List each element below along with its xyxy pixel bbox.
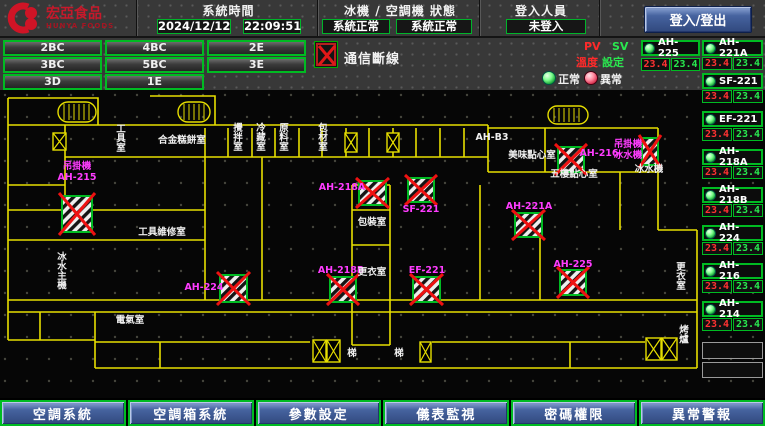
unit-label: SF-221 — [403, 204, 440, 215]
status-led-icon — [705, 304, 716, 315]
floor-button-grid: 2BC 4BC 2E 3BC 5BC 3E 3D 1E — [3, 40, 309, 91]
empty-slot — [702, 342, 763, 359]
unit-label: AH-215 — [57, 172, 96, 183]
nav-ahu-system[interactable]: 空調箱系統 — [128, 400, 254, 426]
pv-name-label: 溫度 — [576, 54, 598, 70]
abnormal-led-icon — [584, 71, 598, 85]
nav-password-access[interactable]: 密碼權限 — [511, 400, 637, 426]
floor-button-2e[interactable]: 2E — [207, 40, 306, 56]
unit-label: AH-224 — [184, 282, 223, 293]
equipment-tile-ah-221a[interactable]: AH-221A — [702, 40, 763, 56]
status-led-icon — [705, 190, 716, 201]
room-label: 包材室 — [317, 122, 328, 153]
room-label: 更衣室 — [358, 266, 387, 278]
sv-name-label: 設定 — [602, 54, 624, 70]
sv-value: 23.4 — [733, 57, 763, 70]
pv-value: 23.4 — [702, 128, 732, 141]
unit-label: AH-225 — [553, 259, 592, 270]
unit-label: 冰水機 — [614, 149, 643, 161]
ahu-status-value: 系統正常 — [396, 19, 472, 34]
comm-loss-marker[interactable] — [512, 210, 545, 240]
comm-loss-label: 通信斷線 — [344, 48, 400, 67]
abnormal-label: 異常 — [600, 71, 622, 87]
brand-logo-icon — [6, 2, 42, 34]
room-label: 攪拌室 — [233, 122, 243, 153]
floor-button-1e[interactable]: 1E — [105, 74, 204, 90]
room-label: 包裝室 — [357, 216, 387, 228]
pv-value: 23.4 — [702, 280, 732, 293]
pv-value: 23.4 — [702, 166, 732, 179]
room-label: 電氣室 — [116, 314, 145, 326]
room-label: 冷藏室 — [256, 122, 266, 153]
equipment-tile-ah-214[interactable]: AH-214 — [702, 301, 763, 317]
floor-button-3bc[interactable]: 3BC — [3, 57, 102, 73]
equipment-values-ah-225: 23.4 23.4 — [641, 58, 700, 71]
comm-loss-marker[interactable] — [327, 274, 359, 305]
sv-value: 23.4 — [733, 204, 763, 217]
equipment-tile-ah-225[interactable]: AH-225 — [641, 40, 700, 56]
normal-led-icon — [542, 71, 556, 85]
equipment-values: 23.423.4 — [702, 318, 763, 331]
equipment-values: 23.423.4 — [702, 90, 763, 103]
status-led-icon — [705, 152, 716, 163]
equipment-name: AH-224 — [719, 222, 760, 244]
nav-alarm[interactable]: 異常警報 — [639, 400, 765, 426]
equipment-values: 23.423.4 — [702, 242, 763, 255]
login-logout-button[interactable]: 登入/登出 — [644, 6, 752, 33]
sv-value: 23.4 — [733, 166, 763, 179]
status-led-icon — [705, 114, 716, 125]
pv-value: 23.4 — [702, 204, 732, 217]
comm-loss-marker[interactable] — [59, 193, 95, 235]
comm-loss-icon — [314, 41, 338, 68]
equipment-tile-ah-218a[interactable]: AH-218A — [702, 149, 763, 165]
shaft-icon — [313, 340, 326, 362]
comm-loss-marker[interactable] — [410, 274, 443, 305]
sv-value: 23.4 — [671, 58, 700, 71]
nav-parameter-config[interactable]: 參數設定 — [256, 400, 382, 426]
equipment-tile-ah-218b[interactable]: AH-218B — [702, 187, 763, 203]
shaft-icon — [420, 342, 431, 362]
status-led-icon — [705, 76, 716, 87]
room-label: 冰水主機 — [57, 251, 67, 292]
unit-label: EF-221 — [409, 265, 445, 276]
shaft-icon — [345, 133, 357, 152]
room-label: 美味點心室 — [507, 149, 556, 161]
machine-status-label: 冰機 / 空調機 狀態 — [319, 2, 481, 19]
floor-button-2bc[interactable]: 2BC — [3, 40, 102, 56]
equipment-tile-ah-216[interactable]: AH-216 — [702, 263, 763, 279]
sv-value: 23.4 — [733, 242, 763, 255]
equipment-values: 23.423.4 — [702, 166, 763, 179]
sv-value: 23.4 — [733, 128, 763, 141]
room-label: 原料室 — [279, 123, 289, 153]
floor-button-3d[interactable]: 3D — [3, 74, 102, 90]
equipment-name: AH-221A — [719, 37, 760, 59]
equipment-name: AH-216 — [719, 260, 760, 282]
pv-value: 23.4 — [702, 90, 732, 103]
logo: 宏亞食品 HUNYA FOODS — [6, 2, 114, 34]
bottom-nav: 空調系統 空調箱系統 參數設定 儀表監視 密碼權限 異常警報 — [0, 400, 765, 426]
room-label: 工具室 — [115, 124, 126, 154]
sv-value: 23.4 — [733, 318, 763, 331]
sv-value: 23.4 — [733, 90, 763, 103]
equipment-tile-ah-224[interactable]: AH-224 — [702, 225, 763, 241]
room-label: 工具維修室 — [138, 226, 186, 238]
unit-label: 吊掛機 — [63, 160, 92, 172]
nav-ac-system[interactable]: 空調系統 — [0, 400, 126, 426]
nav-meter-monitor[interactable]: 儀表監視 — [383, 400, 509, 426]
equipment-name: AH-214 — [719, 298, 760, 320]
status-led-icon — [644, 43, 655, 54]
floor-button-3e[interactable]: 3E — [207, 57, 306, 73]
sv-value: 23.4 — [733, 280, 763, 293]
status-led-icon — [705, 266, 716, 277]
pv-value: 23.4 — [702, 57, 732, 70]
status-led-icon — [705, 228, 716, 239]
shaft-icon — [327, 340, 340, 362]
room-label: 冰水機 — [635, 163, 664, 175]
comm-loss-marker[interactable] — [405, 175, 437, 205]
login-user-value: 未登入 — [506, 19, 586, 34]
floor-button-4bc[interactable]: 4BC — [105, 40, 204, 56]
pv-value: 23.4 — [641, 58, 670, 71]
chiller-status-value: 系統正常 — [322, 19, 390, 34]
equipment-name: AH-218A — [719, 146, 760, 168]
shaft-icon — [646, 338, 661, 360]
shaft-icon — [53, 133, 66, 150]
unit-label: 吊掛機 — [614, 138, 643, 150]
room-label: 梯 — [347, 347, 357, 359]
equipment-name: AH-218B — [719, 184, 760, 206]
unit-label: AH-218A — [319, 182, 366, 193]
pv-value: 23.4 — [702, 318, 732, 331]
pv-value: 23.4 — [702, 242, 732, 255]
room-label: AH-B3 — [475, 132, 508, 143]
equipment-values: 23.423.4 — [702, 128, 763, 141]
equipment-values: 23.423.4 — [702, 280, 763, 293]
floor-button-5bc[interactable]: 5BC — [105, 57, 204, 73]
pv-header: PV — [584, 40, 601, 53]
login-label: 登入人員 — [481, 2, 601, 19]
normal-label: 正常 — [558, 71, 580, 87]
equipment-name: EF-221 — [719, 114, 757, 125]
shaft-icon — [662, 338, 677, 360]
sv-header: SV — [612, 40, 628, 53]
brand-name-en: HUNYA FOODS — [46, 22, 114, 30]
room-label: 烤爐 — [679, 324, 689, 346]
equipment-tile-sf-221[interactable]: SF-221 — [702, 73, 763, 89]
system-date-value: 2024/12/12 — [157, 19, 231, 34]
comm-loss-marker[interactable] — [557, 267, 589, 298]
room-label: 更衣室 — [676, 262, 686, 292]
equipment-values: 23.423.4 — [702, 57, 763, 70]
system-time-label: 系統時間 — [138, 2, 319, 19]
status-led-icon — [705, 43, 716, 54]
equipment-name: SF-221 — [719, 76, 758, 87]
equipment-name: AH-225 — [658, 37, 697, 59]
header-bar: 宏亞食品 HUNYA FOODS 系統時間 2024/12/12 22:09:5… — [0, 0, 765, 38]
equipment-tile-ef-221[interactable]: EF-221 — [702, 111, 763, 127]
system-time-value: 22:09:51 — [243, 19, 301, 34]
unit-label: AH-221A — [506, 201, 553, 212]
equipment-values: 23.423.4 — [702, 204, 763, 217]
room-label: 五樓點心室 — [550, 168, 598, 180]
room-label: 合金糕餅室 — [158, 134, 206, 146]
empty-slot — [702, 362, 763, 378]
shaft-icon — [387, 133, 399, 152]
room-label: 梯 — [394, 347, 404, 359]
floor-plan: 吊掛機AH-215AH-224AH-218ASF-221AH-218BEF-22… — [0, 90, 765, 398]
brand-name: 宏亞食品 — [46, 7, 114, 22]
